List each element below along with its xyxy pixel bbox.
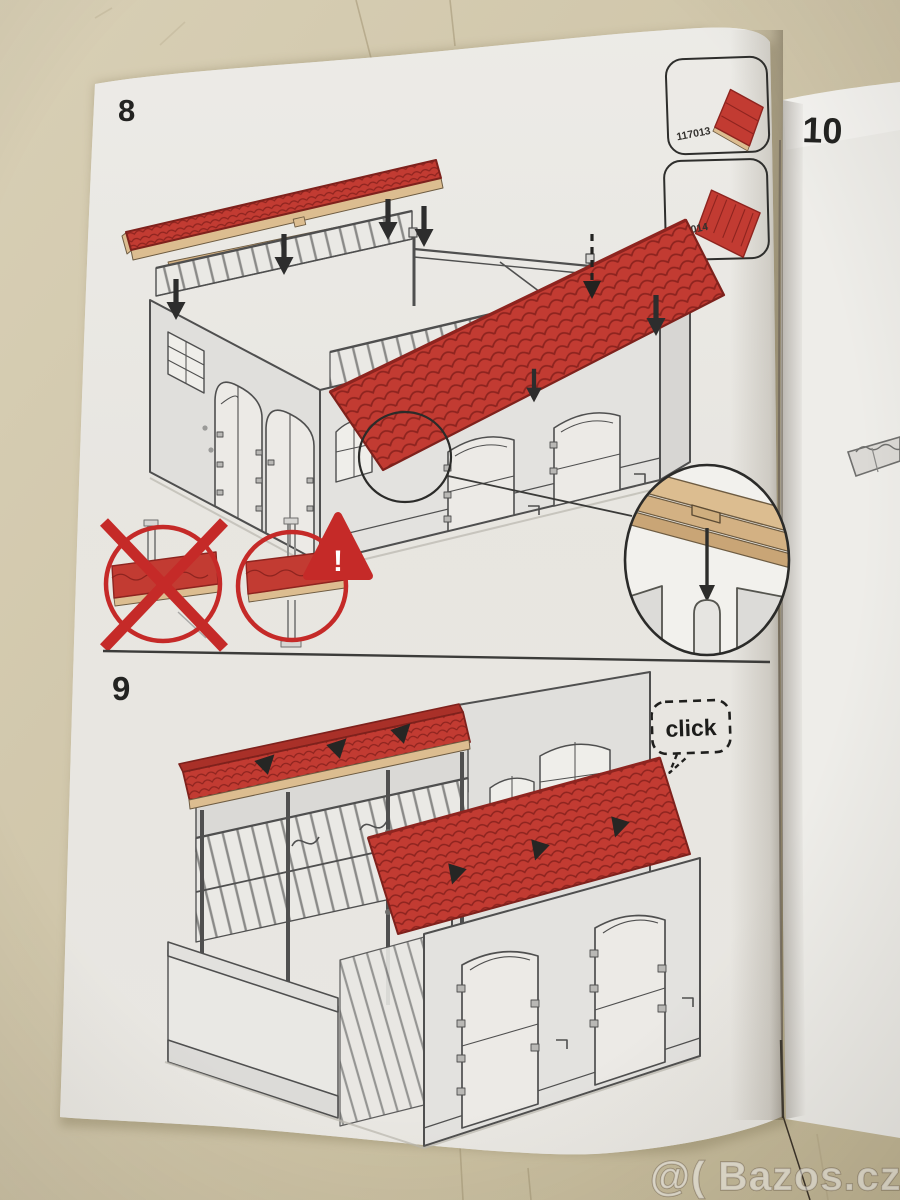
manual-photo-canvas: 10 8 117013 [0,0,900,1200]
photo-of-instruction-manual: 10 8 117013 [0,0,900,1200]
photo-vignette [0,0,900,1200]
